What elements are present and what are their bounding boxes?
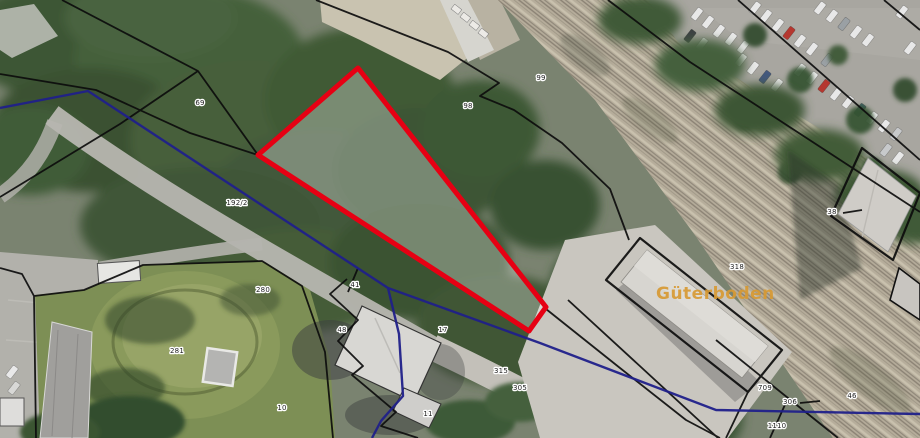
parcel-number-label: 41 [350,281,359,289]
parcel-number-label: 281 [170,347,184,355]
parcel-number-label: 46 [847,392,857,400]
parcel-number-label: 99 [536,74,545,82]
parcel-number-label: 69 [195,99,204,107]
parcel-number-label: 305 [513,384,527,392]
building-label-gueterboden: Güterboden [656,284,775,304]
parcel-number-label: 38 [827,208,836,216]
parcel-number-label: 306 [783,398,797,406]
parcel-number-label: 1110 [768,422,787,430]
parcel-number-label: 318 [730,263,744,271]
parcel-number-label: 709 [758,384,772,392]
parcel-number-label: 315 [494,367,508,375]
parcel-number-label: 17 [438,326,447,334]
map-canvas[interactable]: 69192/2280281104148173153059899383187093… [0,0,920,438]
parcel-number-label: 98 [463,102,472,110]
parcel-number-label: 48 [337,326,346,334]
parcel-number-label: 192/2 [226,199,247,207]
parcel-number-label: 11 [423,410,432,418]
parcel-number-label: 10 [277,404,286,412]
map-viewport[interactable]: 69192/2280281104148173153059899383187093… [0,0,920,438]
parcel-number-label: 280 [256,286,270,294]
